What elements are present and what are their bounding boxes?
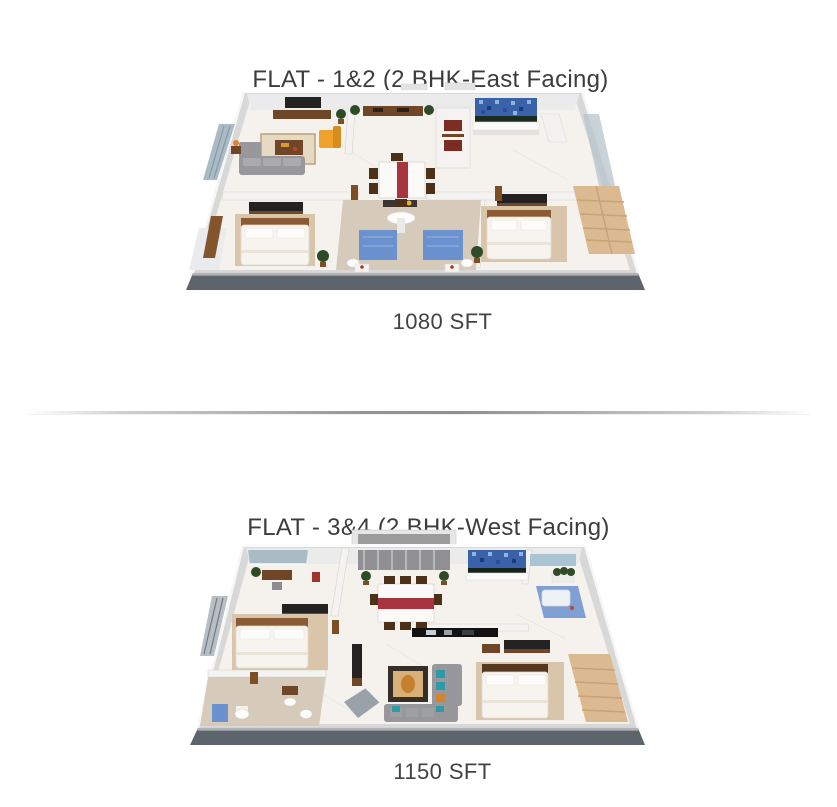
- bed: [236, 626, 308, 668]
- bed: [482, 672, 548, 718]
- bathroom-core: [336, 200, 481, 272]
- floorplan-flat-3-4: [186, 524, 656, 762]
- flat-1-2-area-label: 1080 SFT: [0, 309, 837, 335]
- bed: [487, 217, 551, 259]
- floor-plan-brochure: FLAT - 1&2 (2 BHK-East Facing): [0, 0, 837, 807]
- plinth: [186, 273, 645, 290]
- wall-niche-decor: [442, 120, 464, 151]
- floorplan-flat-1-2: [183, 80, 653, 315]
- coffee-table: [275, 140, 303, 155]
- plinth: [190, 728, 645, 745]
- bed: [241, 225, 309, 265]
- bathroom-left: [200, 672, 326, 726]
- section-divider: [28, 411, 811, 414]
- flat-3-4-area-label: 1150 SFT: [0, 759, 837, 785]
- rug: [388, 666, 428, 702]
